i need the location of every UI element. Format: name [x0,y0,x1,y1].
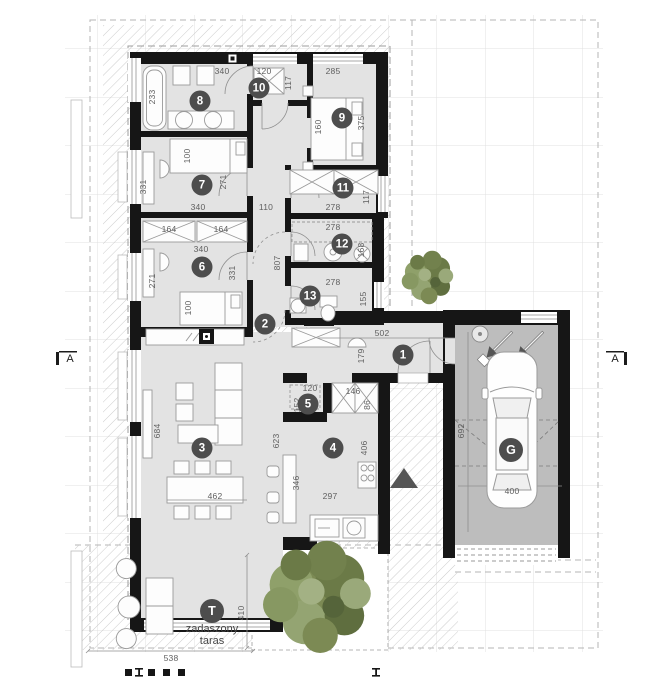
floor-plan-svg [0,0,660,700]
fireplace [199,329,214,344]
entry-door-opening [398,373,428,383]
car-top-view [482,352,542,508]
wall-box-detail [228,54,237,63]
terrace-columns [125,668,380,677]
floor-plan-stage: 3401202851172331603751003312713401102781… [0,0,660,700]
steel-column-icon [135,668,380,677]
garage-door [455,545,558,565]
